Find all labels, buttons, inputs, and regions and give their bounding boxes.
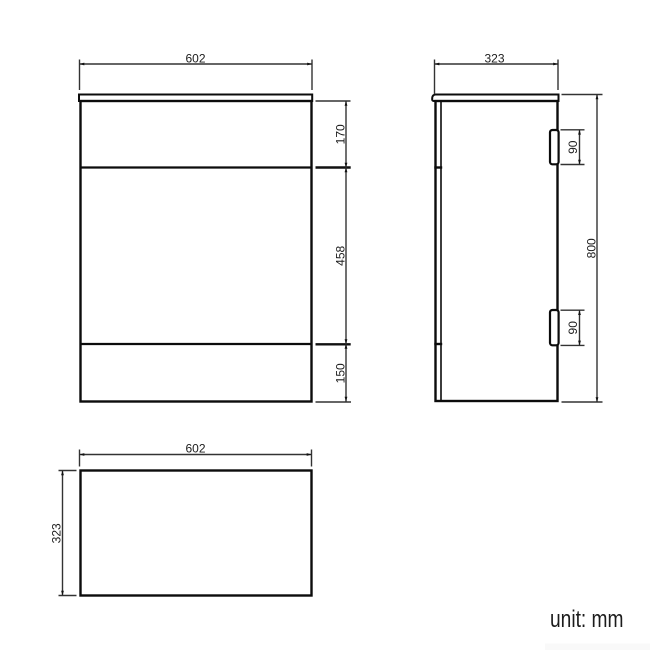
svg-text:90: 90 [566, 140, 580, 154]
svg-text:323: 323 [484, 52, 504, 66]
svg-text:602: 602 [185, 442, 205, 456]
svg-text:170: 170 [334, 124, 348, 144]
svg-text:unit: mm: unit: mm [550, 606, 624, 633]
svg-text:90: 90 [566, 321, 580, 335]
svg-text:800: 800 [584, 238, 598, 258]
svg-text:323: 323 [49, 523, 63, 543]
svg-text:150: 150 [334, 363, 348, 383]
svg-text:458: 458 [334, 245, 348, 265]
svg-text:602: 602 [185, 52, 205, 66]
